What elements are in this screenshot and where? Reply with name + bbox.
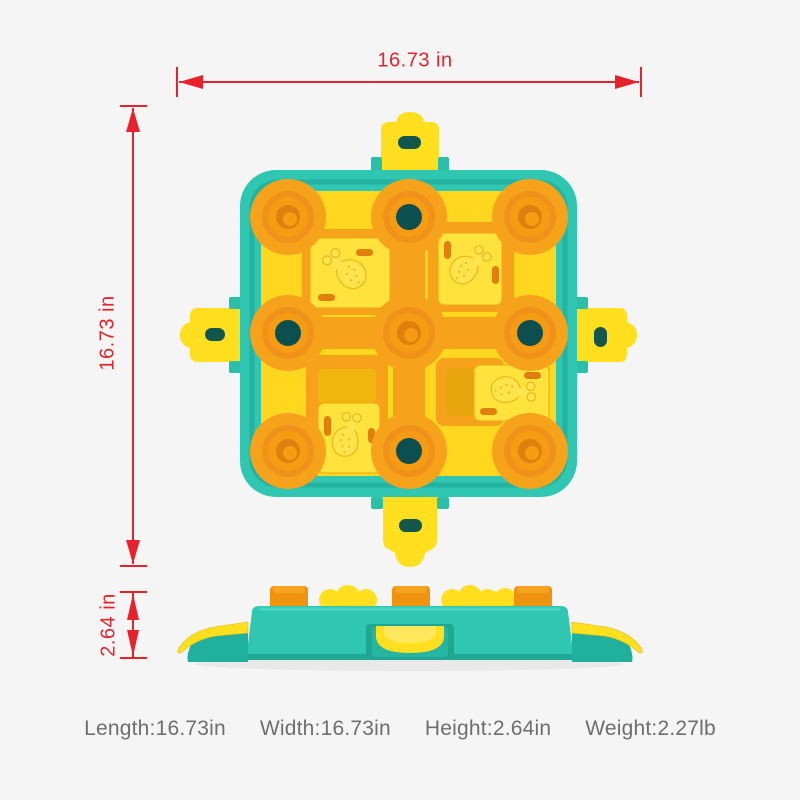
- spec-height: Height:2.64in: [425, 717, 551, 741]
- slider-tile-bottom-right: [474, 363, 549, 421]
- diagram-graphics: [0, 0, 800, 800]
- height-dimension: [120, 106, 147, 566]
- spec-length: Length:16.73in: [84, 717, 226, 741]
- puzzle-feeder-top-view: [180, 112, 637, 567]
- top-clip-tab: [371, 112, 449, 171]
- well-open: [250, 295, 326, 371]
- well-covered: [371, 295, 447, 371]
- well-covered: [250, 413, 326, 489]
- left-clip-tab: [180, 297, 242, 373]
- side-height-dimension: [120, 592, 147, 658]
- slider-tile-bottom-left: [318, 403, 380, 473]
- well-open: [492, 295, 568, 371]
- right-clip-tab: [575, 297, 637, 373]
- slider-tile-top-left: [310, 238, 390, 308]
- spec-caption: Length:16.73in Width:16.73in Height:2.64…: [0, 717, 800, 741]
- well-open: [371, 179, 447, 255]
- width-dimension-label: 16.73 in: [377, 50, 452, 73]
- well-covered: [492, 179, 568, 255]
- feeding-wells: [250, 179, 568, 489]
- bottom-clip-tab: [371, 497, 449, 567]
- spec-width: Width:16.73in: [260, 717, 391, 741]
- side-height-dimension-label: 2.64 in: [98, 593, 121, 657]
- spec-weight: Weight:2.27lb: [585, 717, 716, 741]
- well-covered: [250, 179, 326, 255]
- side-view-latch: [366, 624, 454, 660]
- well-covered: [492, 413, 568, 489]
- well-open: [371, 413, 447, 489]
- height-dimension-label: 16.73 in: [97, 295, 120, 370]
- puzzle-feeder-side-view: [178, 585, 643, 671]
- slider-tile-top-right: [438, 233, 502, 305]
- product-dimension-diagram: 16.73 in 16.73 in 2.64 in Length:16.73in…: [0, 0, 800, 800]
